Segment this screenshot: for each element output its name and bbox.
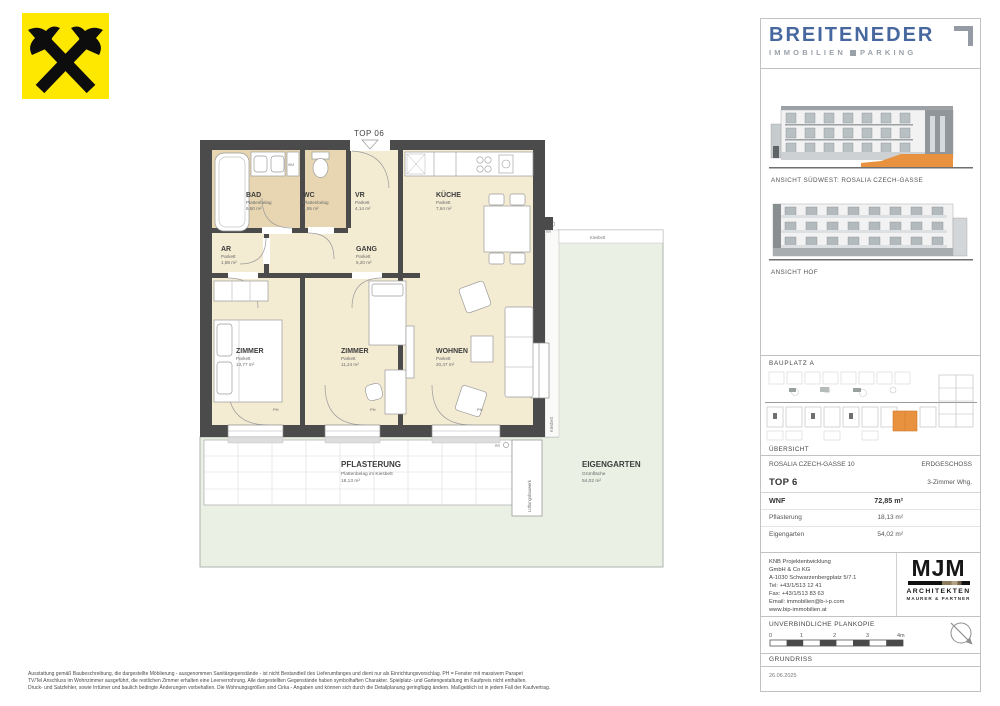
disclaimer-text: Ausstattung gemäß Baubeschreibung, die d… — [28, 671, 668, 692]
room-label-vr: VR — [355, 192, 365, 199]
ventilation-structure: Lüftungsbauwerk — [512, 440, 542, 516]
svg-text:4m: 4m — [897, 633, 905, 639]
svg-text:Parkett: Parkett — [436, 356, 451, 361]
elevation-hof-image — [769, 200, 973, 262]
desk — [385, 370, 406, 414]
pflasterung-label: PFLASTERUNG — [341, 460, 401, 469]
svg-text:1,95 m²: 1,95 m² — [303, 206, 319, 211]
unit-type: 3-Zimmer Whg. — [927, 479, 972, 486]
spec-row-wnf: WNF 72,85 m² — [761, 493, 980, 510]
pillow — [372, 284, 403, 296]
architect-logo: MJM ARCHITEKTEN MAURER & PARTNER — [896, 553, 980, 616]
room-label-bad: BAD — [246, 192, 261, 199]
room-label-wc: WC — [303, 192, 315, 199]
pillow — [217, 362, 232, 394]
dining-chair — [489, 253, 504, 264]
toilet — [312, 152, 329, 159]
svg-text:1: 1 — [800, 633, 803, 639]
spec-row-eigengarten: Eigengarten 54,02 m² — [761, 527, 980, 543]
developer-contact: KNB Projektentwicklung GmbH & Co KG A-10… — [761, 553, 896, 616]
gravel-label: Kiesbett — [590, 235, 606, 240]
elevation-southwest-caption: ANSICHT SÜDWEST: ROSALIA CZECH-GASSE — [771, 177, 972, 184]
bathtub — [215, 153, 249, 231]
svg-text:Plattenbelag: Plattenbelag — [303, 200, 329, 205]
elevation-southwest-image — [769, 104, 973, 170]
svg-text:18,13 m²: 18,13 m² — [341, 478, 360, 484]
gravel-strip-right — [545, 230, 559, 437]
svg-text:RR: RR — [495, 444, 500, 448]
room-label-zimmer2: ZIMMER — [341, 348, 369, 355]
brand-name: BREITENEDER — [769, 24, 972, 47]
svg-text:Parkett: Parkett — [221, 254, 236, 259]
room-label-wohnen: WOHNEN — [436, 348, 468, 355]
brand-tagline: IMMOBILIEN PARKING — [769, 48, 972, 57]
svg-text:13,77 m²: 13,77 m² — [236, 362, 255, 367]
sideboard — [406, 326, 414, 378]
site-plan-image — [765, 369, 977, 441]
sofa — [505, 307, 533, 397]
room-label-ar: AR — [221, 246, 231, 253]
svg-text:5,20 m²: 5,20 m² — [356, 260, 372, 265]
north-arrow-icon — [947, 619, 975, 647]
unit-top-label: TOP 06 — [354, 129, 384, 138]
drawing-type-label: GRUNDRISS — [761, 653, 980, 666]
ph-window-label: PH — [273, 407, 279, 412]
brand-corner-icon — [954, 26, 973, 46]
svg-text:Parkett: Parkett — [436, 200, 451, 205]
pillow — [217, 324, 232, 356]
site-plan-title: BAUPLATZ A — [769, 360, 815, 367]
elevation-hof-caption: ANSICHT HOF — [771, 269, 972, 276]
area-spec-rows: WNF 72,85 m² Pflasterung 18,13 m² Eigeng… — [761, 492, 980, 543]
mjm-wordmark: MJM — [911, 558, 965, 578]
gravel-strip-top — [559, 230, 663, 243]
plan-copy-note: UNVERBINDLICHE PLANKOPIE — [769, 621, 972, 628]
terrace-door — [531, 343, 549, 398]
gravel-label: Kiesbett — [549, 416, 554, 432]
room-label-zimmer1: ZIMMER — [236, 348, 264, 355]
dining-table — [484, 206, 530, 252]
eigengarten-label: EIGENGARTEN — [582, 460, 641, 469]
dining-chair — [510, 194, 525, 205]
svg-text:Plattenbelag im Kiesbett: Plattenbelag im Kiesbett — [341, 471, 393, 477]
scale-bar: 0 1 2 3 4m — [769, 629, 919, 651]
svg-text:Plattenbelag: Plattenbelag — [246, 200, 272, 205]
svg-text:54,02 m²: 54,02 m² — [582, 478, 601, 484]
site-plan-caption: ÜBERSICHT — [769, 446, 809, 453]
dining-chair — [510, 253, 525, 264]
svg-text:7,64 m²: 7,64 m² — [436, 206, 452, 211]
coffee-table — [471, 336, 493, 362]
plan-copy-section: UNVERBINDLICHE PLANKOPIE 0 1 2 3 4m — [761, 616, 980, 653]
unit-info-table: ROSALIA CZECH-GASSE 10 ERDGESCHOSS TOP 6… — [761, 455, 980, 553]
svg-text:Parkett: Parkett — [341, 356, 356, 361]
site-plan-section: BAUPLATZ A — [761, 355, 980, 455]
unit-number: TOP 6 — [769, 477, 798, 488]
svg-text:4,14 m²: 4,14 m² — [355, 206, 371, 211]
svg-text:1,88 m²: 1,88 m² — [221, 260, 237, 265]
ph-window-label: PH — [477, 407, 483, 412]
room-label-gang: GANG — [356, 246, 378, 253]
svg-text:Parkett: Parkett — [236, 356, 251, 361]
spec-row-pflasterung: Pflasterung 18,13 m² — [761, 510, 980, 527]
svg-text:2: 2 — [833, 633, 836, 639]
svg-text:0: 0 — [769, 633, 772, 639]
mjm-logo-bar — [908, 581, 970, 585]
elevation-views: ANSICHT SÜDWEST: ROSALIA CZECH-GASSE — [761, 69, 980, 355]
info-sidebar: BREITENEDER IMMOBILIEN PARKING — [760, 18, 981, 692]
ph-window-label: PH — [370, 407, 376, 412]
washer-label: WM — [288, 163, 294, 167]
windows — [228, 425, 500, 443]
kitchen-counter — [405, 152, 533, 176]
contact-section: KNB Projektentwicklung GmbH & Co KG A-10… — [761, 552, 980, 616]
svg-text:RR: RR — [546, 230, 551, 234]
svg-text:3: 3 — [866, 633, 869, 639]
svg-text:Grünfläche: Grünfläche — [582, 471, 606, 477]
dining-chair — [489, 194, 504, 205]
address-label: ROSALIA CZECH-GASSE 10 — [769, 461, 855, 468]
svg-text:11,24 m²: 11,24 m² — [341, 362, 359, 367]
room-label-kueche: KÜCHE — [436, 190, 461, 199]
wardrobe — [214, 281, 268, 301]
square-separator-icon — [850, 50, 856, 56]
plan-document-page: Lüftungsbauwerk RR RR — [0, 0, 1000, 706]
brand-header: BREITENEDER IMMOBILIEN PARKING — [761, 19, 980, 69]
ventilation-label: Lüftungsbauwerk — [527, 479, 532, 512]
svg-text:20,47 m²: 20,47 m² — [436, 362, 455, 367]
floor-label: ERDGESCHOSS — [921, 461, 972, 468]
plan-date: 26.06.2025 — [761, 666, 980, 691]
svg-text:6,50 m²: 6,50 m² — [246, 206, 262, 211]
svg-text:Parkett: Parkett — [356, 254, 371, 259]
svg-text:Parkett: Parkett — [355, 200, 370, 205]
